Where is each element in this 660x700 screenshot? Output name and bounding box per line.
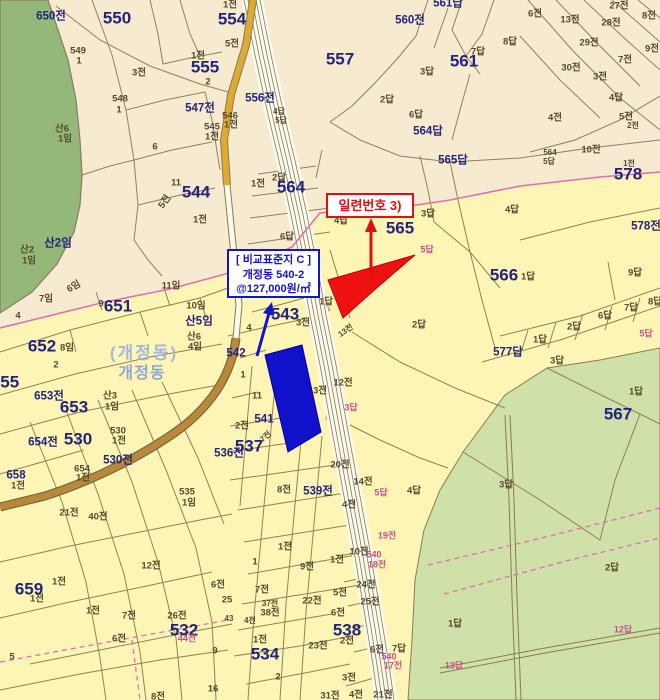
cadastral-map[interactable]: 650전55054913전1전55525481547전5461전5451전산61… bbox=[0, 0, 660, 700]
serial-number-text: 일련번호 3) bbox=[338, 198, 401, 213]
serial-number-callout: 일련번호 3) bbox=[326, 193, 414, 218]
reference-parcel-title: [ 비교표준지 C ] bbox=[229, 253, 318, 268]
reference-parcel-callout: [ 비교표준지 C ] 개정동 540-2 @127,000원/㎡ bbox=[227, 249, 320, 298]
reference-parcel-price: @127,000원/㎡ bbox=[229, 282, 318, 297]
reference-parcel-lot: 개정동 540-2 bbox=[229, 268, 318, 283]
map-canvas bbox=[0, 0, 660, 700]
